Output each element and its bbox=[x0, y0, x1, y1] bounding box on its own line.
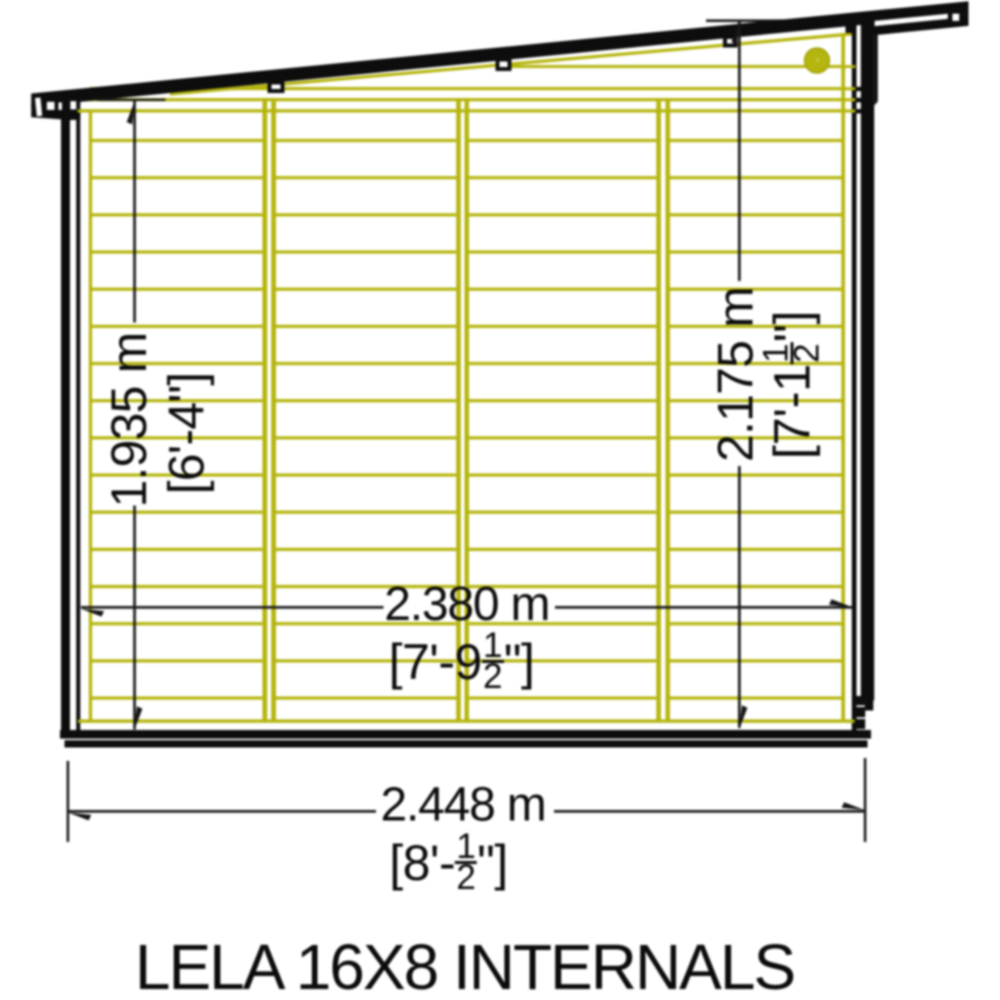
svg-text:2.380 m: 2.380 m bbox=[384, 578, 549, 631]
svg-text:[6'-4"]: [6'-4"] bbox=[159, 373, 215, 495]
svg-text:2.448 m: 2.448 m bbox=[380, 779, 545, 832]
svg-text:LELA 16X8 INTERNALS: LELA 16X8 INTERNALS bbox=[135, 931, 794, 1000]
svg-text:1.935 m: 1.935 m bbox=[101, 332, 157, 507]
svg-text:2.175 m: 2.175 m bbox=[708, 287, 764, 462]
